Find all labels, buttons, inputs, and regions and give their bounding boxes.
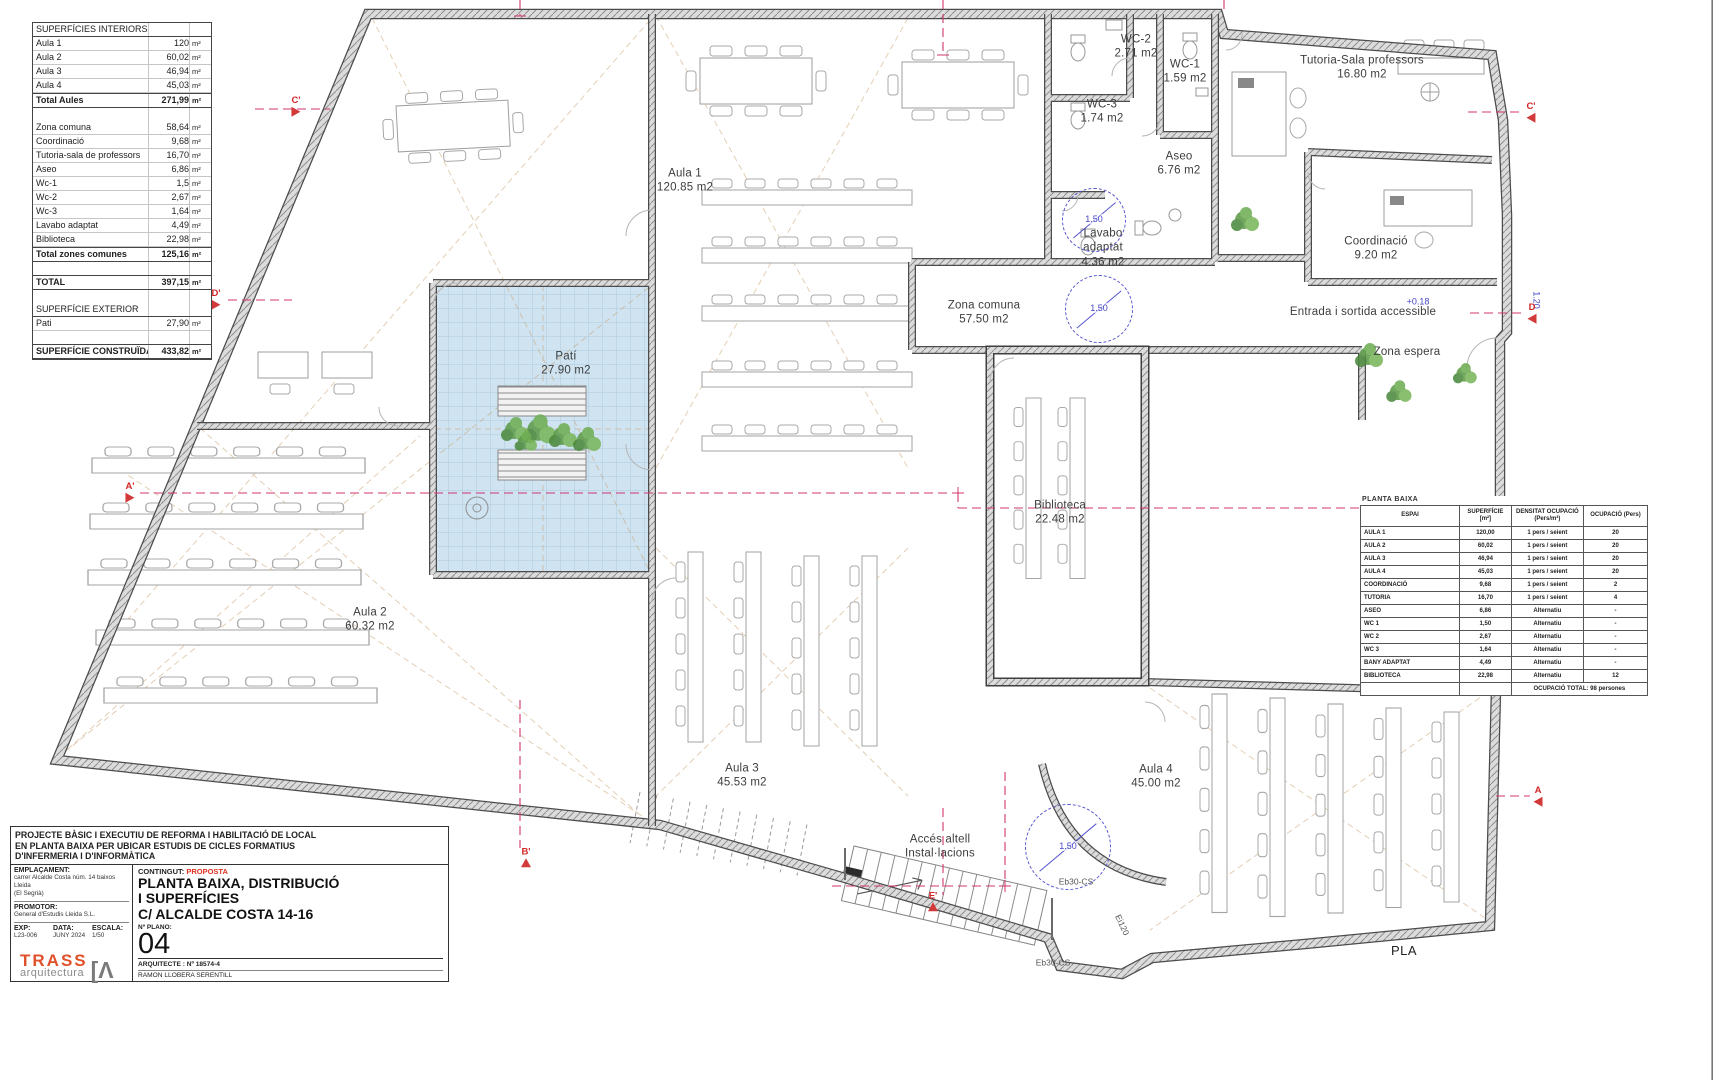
occ-cell: 1 pers / seient [1511,540,1583,553]
occ-cell: Alternatiu [1511,670,1583,683]
surfaces-row-total: TOTAL397,15m² [33,275,211,290]
sheet-right-border [1712,0,1713,1080]
occ-footer-cell: OCUPACIÓ TOTAL: 98 persones [1511,683,1647,696]
occ-row-bany-adaptat: BANY ADAPTAT4,49Alternatiu- [1361,657,1648,670]
occ-cell: 4,49 [1460,657,1512,670]
occ-row-aula-3: AULA 346,941 pers / seient20 [1361,553,1648,566]
occ-cell: WC 1 [1361,618,1460,631]
occ-cell: 45,03 [1460,566,1512,579]
surfaces-row-superf-cie-exterior: SUPERFÍCIE EXTERIOR [33,303,211,317]
occ-header-row: ESPAISUPERFÍCIE [m²]DENSITAT OCUPACIÓ (P… [1361,506,1648,527]
surfaces-row-aula-2: Aula 260,02m² [33,51,211,65]
occ-cell: Alternatiu [1511,644,1583,657]
occ-row-aula-4: AULA 445,031 pers / seient20 [1361,566,1648,579]
occ-cell: AULA 2 [1361,540,1460,553]
occ-cell: COORDINACIÓ [1361,579,1460,592]
exp-data-escala-row: EXP:L23-006 DATA:JUNY 2024 ESCALA:1/50 [14,925,129,942]
occupancy-table-wrap: PLANTA BAIXA ESPAISUPERFÍCIE [m²]DENSITA… [1360,496,1648,696]
project-description: PROJECTE BÀSIC I EXECUTIU DE REFORMA I H… [11,827,448,865]
occ-cell: - [1583,618,1647,631]
occupancy-table: ESPAISUPERFÍCIE [m²]DENSITAT OCUPACIÓ (P… [1360,505,1648,696]
occ-cell: 2 [1583,579,1647,592]
logo-sub-text: arquitectura [20,968,88,979]
occ-cell: AULA 3 [1361,553,1460,566]
data-value: JUNY 2024 [53,932,90,940]
occ-cell: 1,50 [1460,618,1512,631]
escala-value: 1/50 [92,932,129,940]
occ-cell: 1 pers / seient [1511,553,1583,566]
occ-cell: 1 pers / seient [1511,592,1583,605]
occ-row-wc-1: WC 11,50Alternatiu- [1361,618,1648,631]
data-label: DATA: [53,925,74,932]
occ-header-cell: ESPAI [1361,506,1460,527]
occ-cell: 20 [1583,566,1647,579]
promotor-label: PROMOTOR: [14,904,129,911]
occ-cell: Alternatiu [1511,618,1583,631]
occupancy-table-title: PLANTA BAIXA [1362,496,1648,503]
escala-label: ESCALA: [92,925,123,932]
title-block-left: EMPLAÇAMENT: carrer Alcalde Costa núm. 1… [11,865,133,981]
logo-brand-text: TRASS [20,953,88,968]
occ-cell: TUTORIA [1361,592,1460,605]
surfaces-row-aula-3: Aula 346,94m² [33,65,211,79]
surfaces-row-coordinaci: Coordinació9,68m² [33,135,211,149]
occ-cell: - [1583,605,1647,618]
title-block-right: CONTINGUT: PROPOSTA PLANTA BAIXA, DISTRI… [133,865,448,981]
occ-cell: 2,67 [1460,631,1512,644]
surfaces-row-aseo: Aseo6,86m² [33,163,211,177]
occ-cell: 6,86 [1460,605,1512,618]
surfaces-row-lavabo-adaptat: Lavabo adaptat4,49m² [33,219,211,233]
occ-cell: 22,98 [1460,670,1512,683]
occ-row-wc-2: WC 22,67Alternatiu- [1361,631,1648,644]
occ-header-cell: SUPERFÍCIE [m²] [1460,506,1512,527]
sheet-title: PLANTA BAIXA, DISTRIBUCIÓ I SUPERFÍCIES … [138,876,443,923]
surfaces-row-blank [33,331,211,344]
plano-label: Nº PLANO: [138,924,443,931]
occ-cell: 12 [1583,670,1647,683]
occ-row-wc-3: WC 31,64Alternatiu- [1361,644,1648,657]
emplacament-value: carrer Alcalde Costa núm. 14 baixos Llei… [14,874,129,899]
occ-cell: AULA 1 [1361,527,1460,540]
occ-cell: Alternatiu [1511,631,1583,644]
occ-cell: ASEO [1361,605,1460,618]
surfaces-row-zona-comuna: Zona comuna58,64m² [33,121,211,135]
occ-cell: 1,64 [1460,644,1512,657]
occ-row-biblioteca: BIBLIOTECA22,98Alternatiu12 [1361,670,1648,683]
occ-cell: 20 [1583,527,1647,540]
occ-cell: WC 3 [1361,644,1460,657]
surfaces-row-blank [33,108,211,121]
occ-row-tutoria: TUTORIA16,701 pers / seient4 [1361,592,1648,605]
occ-cell: 120,00 [1460,527,1512,540]
surfaces-row-blank [33,290,211,303]
surfaces-row-total-aules: Total Aules271,99m² [33,93,211,108]
architect-box: ARQUITECTE : Nº 18574-4 RAMON LLOBERA SE… [138,958,443,980]
surfaces-row-wc-2: Wc-22,67m² [33,191,211,205]
occ-cell: Alternatiu [1511,605,1583,618]
occ-cell: 1 pers / seient [1511,527,1583,540]
occ-cell: 16,70 [1460,592,1512,605]
architect-line1: ARQUITECTE : Nº 18574-4 [138,961,443,968]
surfaces-row-wc-3: Wc-31,64m² [33,205,211,219]
occ-row-aula-2: AULA 260,021 pers / seient20 [1361,540,1648,553]
divider [14,901,129,902]
title-block: PROJECTE BÀSIC I EXECUTIU DE REFORMA I H… [10,826,449,982]
plano-number: 04 [138,931,443,959]
surfaces-row-aula-4: Aula 445,03m² [33,79,211,93]
trass-logo: TRASS arquitectura [Λ [14,951,129,979]
surfaces-row-wc-1: Wc-11,5m² [33,177,211,191]
occ-cell: Alternatiu [1511,657,1583,670]
emplacament-label: EMPLAÇAMENT: [14,867,129,874]
occ-cell: 9,68 [1460,579,1512,592]
occ-row-aula-1: AULA 1120,001 pers / seient20 [1361,527,1648,540]
occ-cell: 20 [1583,553,1647,566]
occ-cell: 20 [1583,540,1647,553]
drawing-sheet: WC-2 2.71 m2WC-1 1.59 m2WC-3 1.74 m2Tuto… [0,0,1731,1080]
occ-cell: 46,94 [1460,553,1512,566]
surfaces-row-superf-cies-interiors: SUPERFÍCIES INTERIORS [33,23,211,37]
architect-line2: RAMON LLOBERA SERENTILL [138,970,443,979]
surfaces-row-superf-cie-constru-da: SUPERFÍCIE CONSTRUÏDA433,82m² [33,344,211,359]
occ-cell: 4 [1583,592,1647,605]
occ-cell: 1 pers / seient [1511,579,1583,592]
divider [14,922,129,923]
occ-cell: WC 2 [1361,631,1460,644]
surfaces-row-tutoria-sala-de-professors: Tutoria-sala de professors16,70m² [33,149,211,163]
occ-footer-row: OCUPACIÓ TOTAL: 98 persones [1361,683,1648,696]
occ-cell: BIBLIOTECA [1361,670,1460,683]
occ-cell: - [1583,657,1647,670]
occ-cell: AULA 4 [1361,566,1460,579]
occ-header-cell: DENSITAT OCUPACIÓ (Pers/m²) [1511,506,1583,527]
occ-cell: 1 pers / seient [1511,566,1583,579]
surfaces-table: SUPERFÍCIES INTERIORSAula 1120m²Aula 260… [32,22,212,360]
occ-row-aseo: ASEO6,86Alternatiu- [1361,605,1648,618]
exp-label: EXP: [14,925,30,932]
surfaces-row-aula-1: Aula 1120m² [33,37,211,51]
occ-cell: - [1583,644,1647,657]
promotor-value: General d'Estudis Lleida S.L. [14,911,129,919]
occ-cell: - [1583,631,1647,644]
occ-header-cell: OCUPACIÓ (Pers) [1583,506,1647,527]
surfaces-row-pati: Pati27,90m² [33,317,211,331]
logo-bracket-icon: [Λ [91,961,114,979]
surfaces-row-biblioteca: Biblioteca22,98m² [33,233,211,247]
occ-cell: BANY ADAPTAT [1361,657,1460,670]
surfaces-row-total-zones-comunes: Total zones comunes125,16m² [33,247,211,262]
occ-row-coordinaci: COORDINACIÓ9,681 pers / seient2 [1361,579,1648,592]
occ-cell: 60,02 [1460,540,1512,553]
surfaces-row-blank [33,262,211,275]
exp-value: L23-006 [14,932,51,940]
